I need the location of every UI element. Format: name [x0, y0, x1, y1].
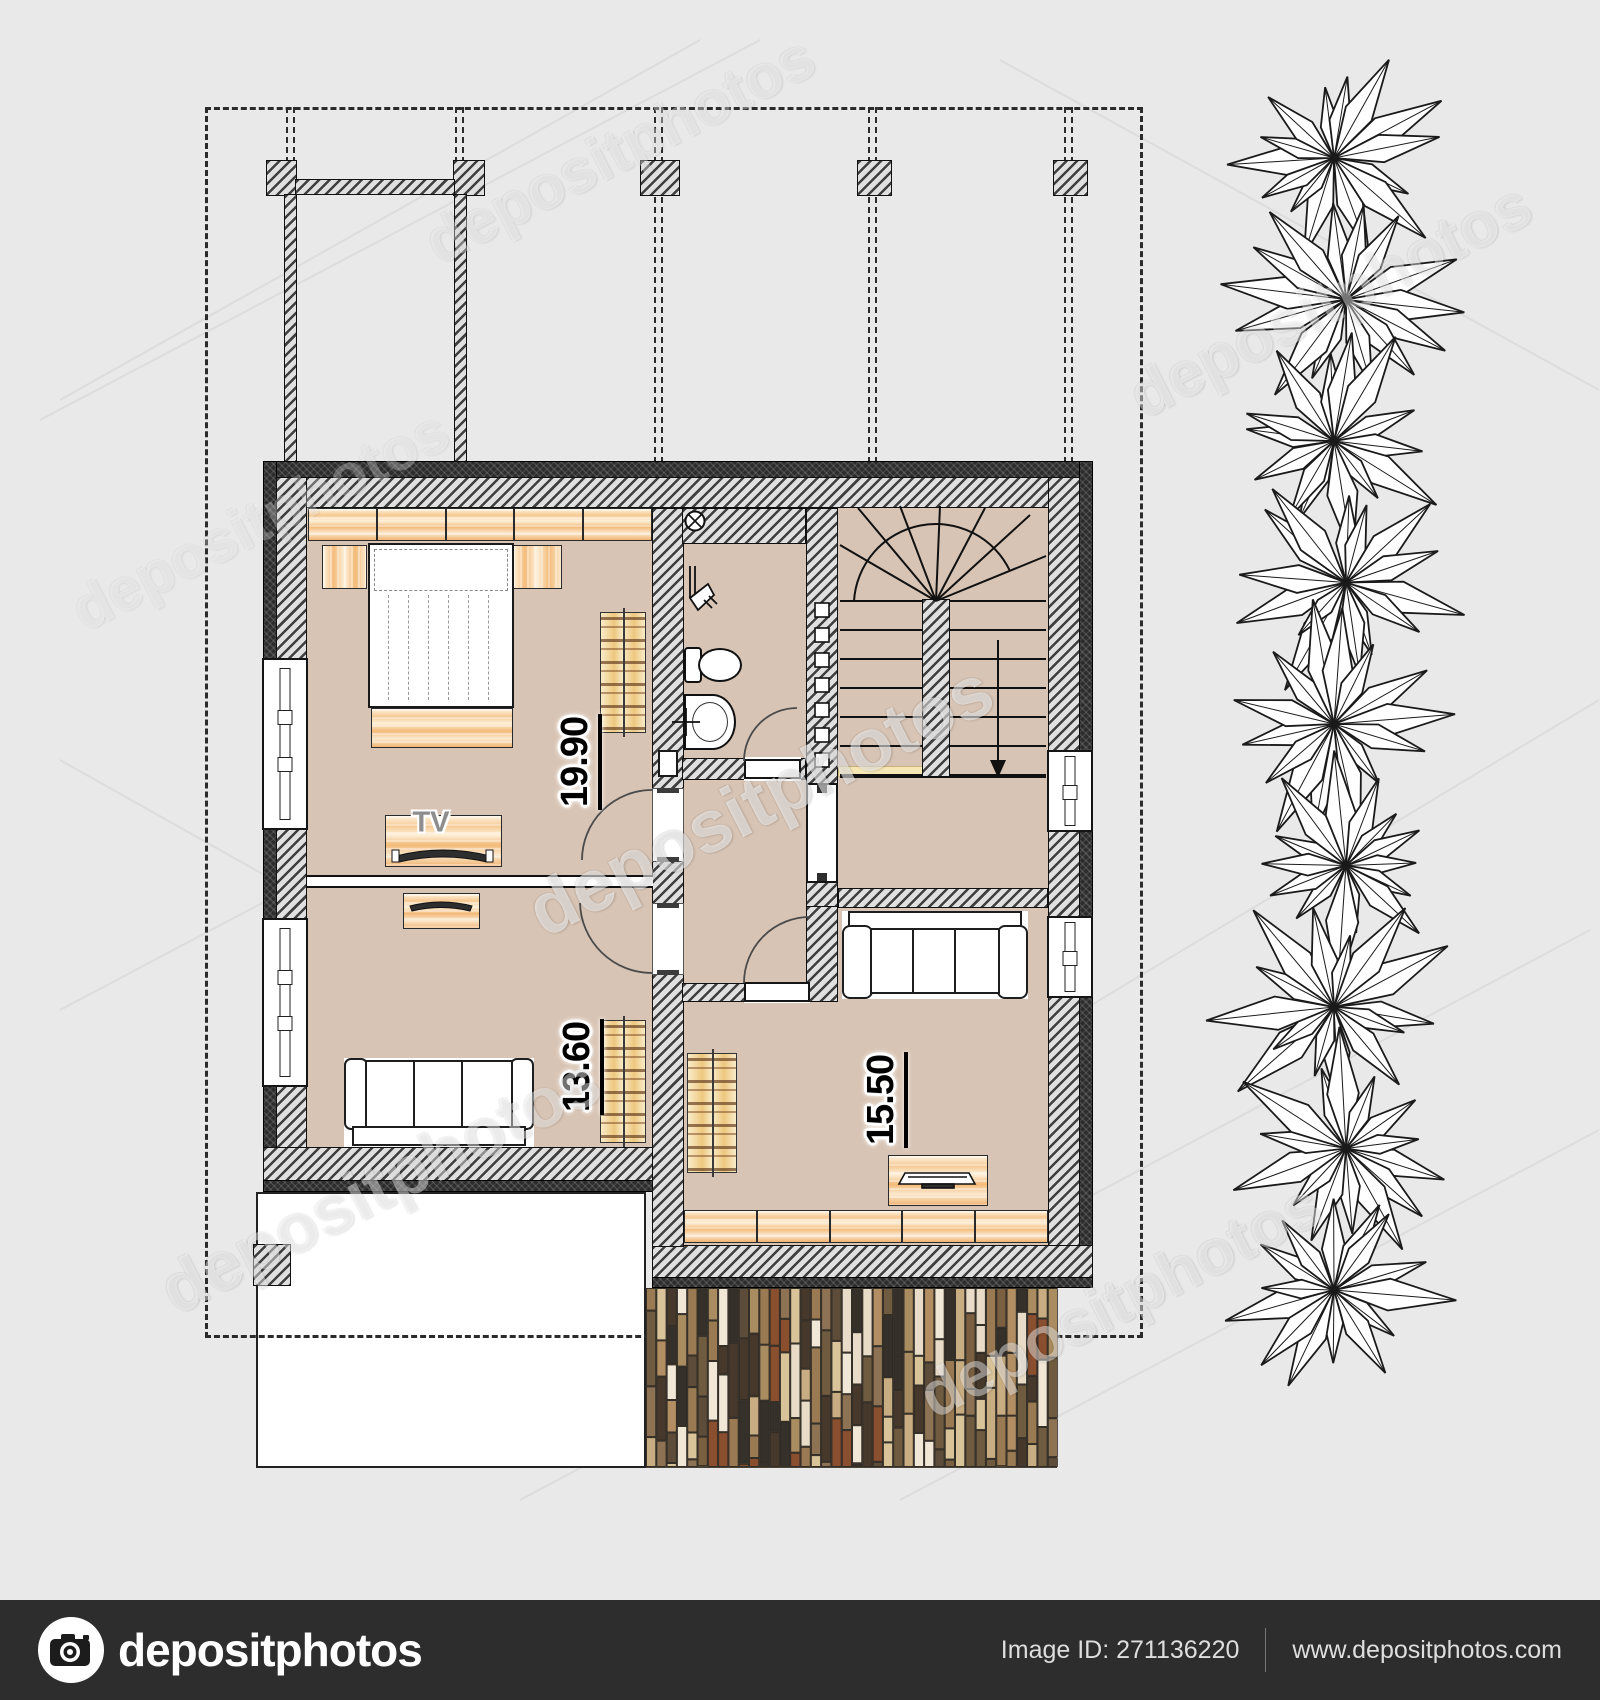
- door-swing-arcs: [580, 708, 810, 983]
- stair-down-arrow: [990, 640, 1006, 778]
- sideboard-item: [410, 902, 472, 911]
- area-label-bedroom: 19.90: [554, 714, 602, 810]
- tree-symbols: [1206, 60, 1464, 1386]
- tv-screen: [392, 850, 493, 862]
- duct-squares: [815, 603, 829, 767]
- sink-tap: [672, 708, 700, 736]
- vent-symbol: [686, 512, 705, 531]
- plan-linework: [0, 0, 1600, 1700]
- area-label-room13: 13.60: [556, 1019, 604, 1115]
- staircase: [840, 506, 1046, 777]
- floor-plan-stock-image: 19.90 13.60 15.50 TV depositphotos depos…: [0, 0, 1600, 1700]
- stone-cladding: [646, 1288, 1057, 1468]
- laptop: [899, 1173, 975, 1188]
- tv-label: TV: [412, 807, 449, 840]
- shower-symbol: [690, 566, 717, 610]
- area-label-room15: 15.50: [860, 1052, 908, 1148]
